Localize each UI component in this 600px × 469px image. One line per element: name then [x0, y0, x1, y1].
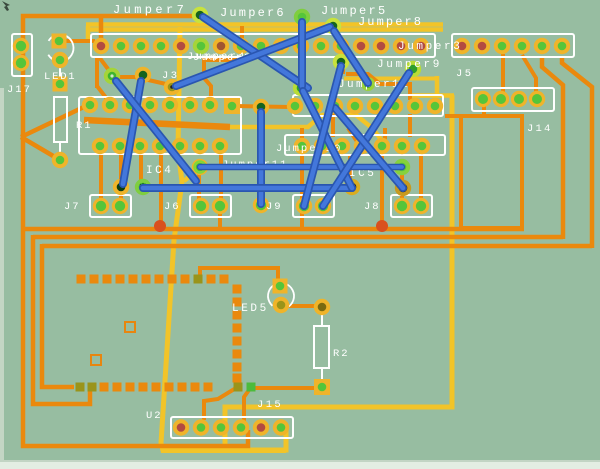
svg-text:J9: J9: [266, 201, 283, 213]
svg-text:LED1: LED1: [44, 71, 76, 83]
svg-text:U2: U2: [146, 410, 163, 422]
svg-text:J7: J7: [64, 201, 81, 213]
svg-text:J15: J15: [257, 399, 283, 411]
svg-text:R2: R2: [333, 348, 350, 360]
svg-text:J14: J14: [527, 123, 553, 135]
svg-text:J3: J3: [162, 70, 180, 82]
svg-text:Jumper6: Jumper6: [220, 6, 286, 20]
svg-text:LED5: LED5: [232, 303, 269, 315]
svg-text:J6: J6: [164, 201, 181, 213]
svg-text:Jumper3: Jumper3: [398, 41, 462, 53]
svg-text:Jumper8: Jumper8: [358, 15, 423, 29]
svg-text:J17: J17: [7, 84, 32, 96]
svg-text:Jumper7: Jumper7: [113, 3, 187, 17]
svg-text:IC4: IC4: [146, 165, 173, 177]
svg-text:R1: R1: [76, 120, 93, 132]
svg-text:J8: J8: [364, 201, 381, 213]
svg-text:J5: J5: [456, 68, 474, 80]
